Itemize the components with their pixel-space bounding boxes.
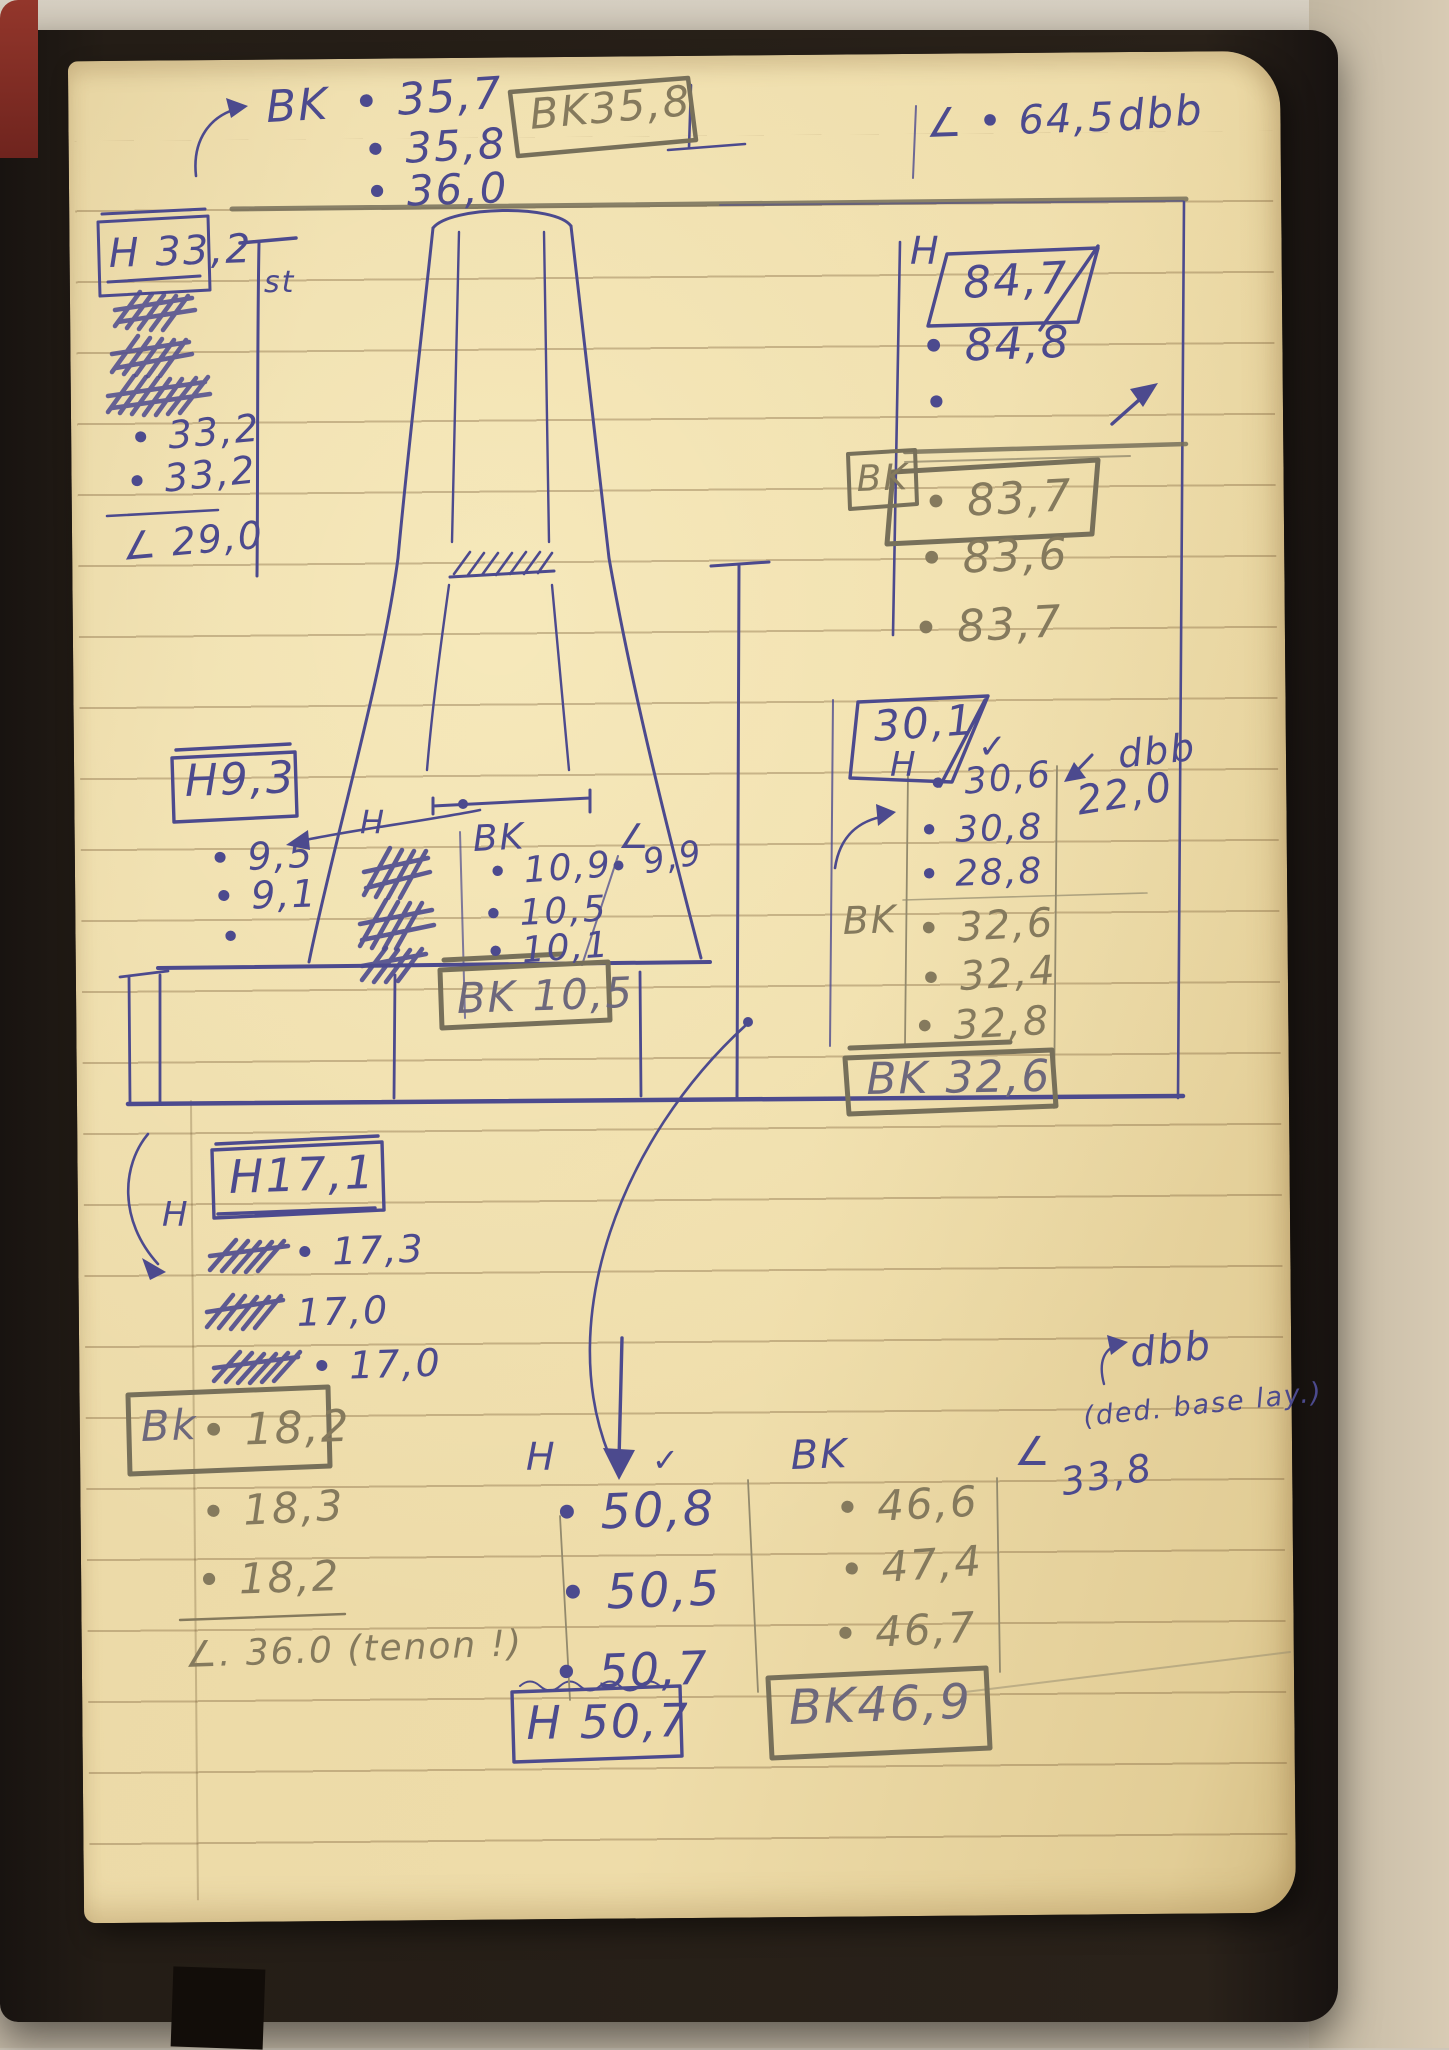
bk32-value-3: • 32,8 [912,1001,1051,1048]
h9-boxed-result: H9,3 [184,756,297,804]
h30-value-2: • 30,8 [918,810,1044,850]
h9-value-3: • [220,920,243,956]
top-angle-unit: dbb [1116,89,1205,138]
angle33-unit: dbb [1128,1325,1214,1373]
h33-angle-value: ∠ 29,0 [120,516,266,566]
h50-value-1: • 50,8 [552,1484,716,1538]
bk46-value-2: • 47,4 [838,1540,984,1592]
bk83-value-1: • 83,6 [918,533,1069,582]
h17-value-2: 17,0 [296,1291,390,1332]
bk10-value-3: • 10,1 [484,927,611,972]
bk32-value-1: • 32,6 [916,903,1055,950]
h17-value-3: • 17,0 [310,1343,442,1386]
h9-value-2: • 9,1 [212,874,318,916]
bk46-value-1: • 46,6 [834,1480,980,1529]
h30-label: H [890,748,918,782]
angle33-label: ∠ [1014,1432,1052,1472]
bk83-boxed-result: • 83,7 [922,474,1074,526]
top-angle-value: ∠ • 64,5 [925,97,1116,144]
bk18-boxed-value: • 18,2 [200,1405,351,1454]
h30-boxed-result: 30,1 [872,699,976,748]
h50-value-2: • 50,5 [558,1564,722,1618]
bk10-value-1: • 10,9 [486,847,613,892]
h17-pointer-label: H [162,1198,190,1232]
bk18-value-2: • 18,2 [196,1555,341,1602]
top-bk-value-3: • 36,0 [364,167,509,214]
h50-label: H [526,1438,557,1476]
bk18-value-1: • 18,3 [200,1484,346,1533]
notebook-spine-red [0,0,38,158]
bk83-label: BK [856,460,910,498]
bookmark-ribbon [171,1966,266,2049]
h50-value-3: • 50,7 [552,1645,710,1696]
h17-value-1: • 17,3 [293,1229,425,1272]
h17-boxed-result: H17,1 [228,1149,377,1200]
ruled-lines [75,131,1288,1883]
bk46-label: BK [790,1434,849,1476]
h84-value-2: • [924,382,951,424]
top-bk-value-1: • 35,7 [352,72,505,126]
bk32-boxed-result: BK 32,6 [866,1055,1052,1102]
h84-label: H [910,232,941,270]
bk10-boxed-result: BK 10,5 [456,972,635,1020]
bk18-label: Bk [140,1404,199,1448]
bk46-boxed-result: BK46,9 [788,1678,973,1732]
h84-value-1: • 84,8 [920,321,1071,370]
bk32-label: BK [842,900,898,940]
st-label: st [264,268,295,298]
h50-boxed-result: H 50,7 [526,1697,690,1746]
top-bk-label: BK [265,83,330,130]
h33-boxed-result: H 33,2 [108,229,253,274]
bk32-value-2: • 32,4 [918,950,1058,999]
h9-pointer-label: H [360,806,386,838]
h84-boxed-result: 84,7 [962,256,1070,305]
h30-value-3: • 28,8 [918,854,1044,894]
bk46-value-3: • 46,7 [832,1606,978,1655]
h50-check: ✓ [652,1444,681,1476]
bk83-value-2: • 83,7 [912,600,1064,652]
